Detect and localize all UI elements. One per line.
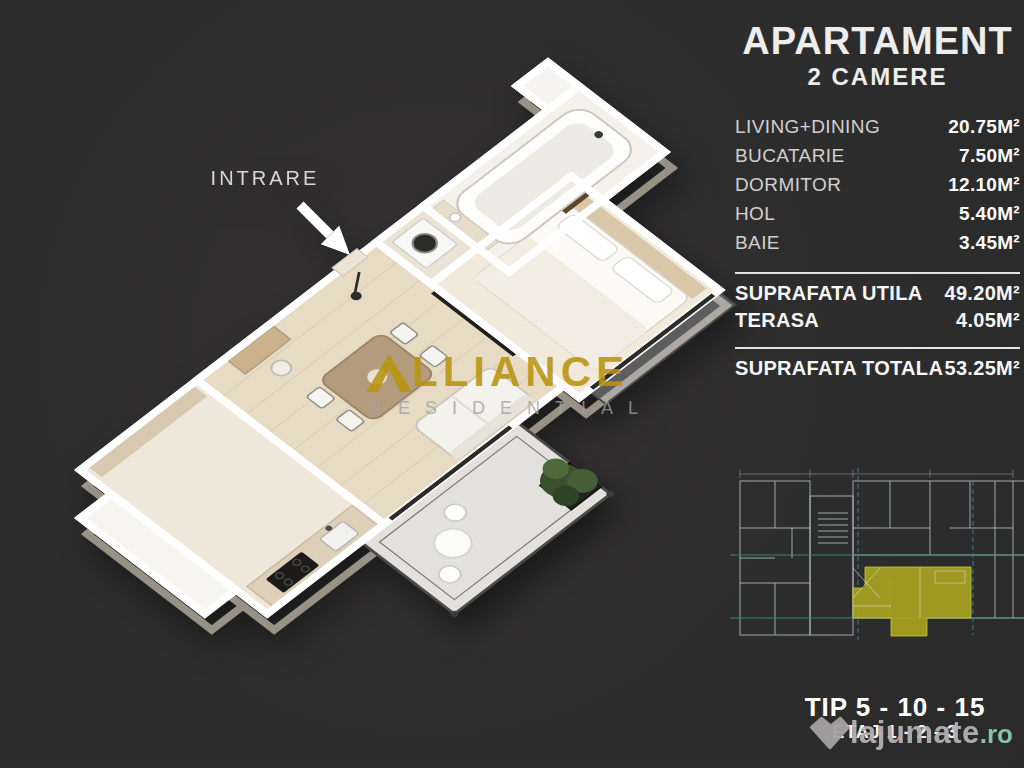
- table-row: HOL 5.40M²: [735, 203, 1020, 232]
- page-title: APARTAMENT: [735, 20, 1020, 62]
- alliance-watermark: LLIANCE RESIDENTIAL: [366, 352, 653, 419]
- table-row: DORMITOR 12.10M²: [735, 174, 1020, 203]
- listing-image: INTRARE LLIANCE RESIDENTIAL APARTAMENT 2…: [0, 0, 1024, 768]
- table-row: BAIE 3.45M²: [735, 232, 1020, 261]
- lajumate-watermark: lajumate .ro: [808, 716, 1013, 750]
- page-subtitle: 2 CAMERE: [735, 63, 1020, 90]
- alliance-wordmark: LLIANCE: [412, 352, 629, 392]
- summary-row: TERASA 4.05M²: [735, 309, 1020, 336]
- alliance-logo-icon: [366, 352, 412, 392]
- entrance-label: INTRARE: [211, 167, 320, 189]
- highlighted-unit: [853, 567, 971, 636]
- divider: [735, 272, 1020, 274]
- lajumate-logo-icon: [808, 716, 850, 750]
- room-table: LIVING+DINING 20.75M² BUCATARIE 7.50M² D…: [735, 116, 1020, 261]
- divider: [735, 347, 1020, 349]
- table-row: LIVING+DINING 20.75M²: [735, 116, 1020, 145]
- table-row: BUCATARIE 7.50M²: [735, 145, 1020, 174]
- lajumate-site-text: lajumate: [850, 716, 980, 750]
- lajumate-tld-text: .ro: [980, 718, 1013, 750]
- entrance-arrow-icon: [300, 205, 350, 255]
- info-panel: APARTAMENT 2 CAMERE LIVING+DINING 20.75M…: [735, 20, 1020, 384]
- summary-row: SUPRAFATA UTILA 49.20M²: [735, 282, 1020, 309]
- building-plan-thumbnail: [730, 468, 1024, 640]
- alliance-residential-text: RESIDENTIAL: [366, 398, 653, 419]
- total-row: SUPRAFATA TOTALA 53.25M²: [735, 357, 1020, 384]
